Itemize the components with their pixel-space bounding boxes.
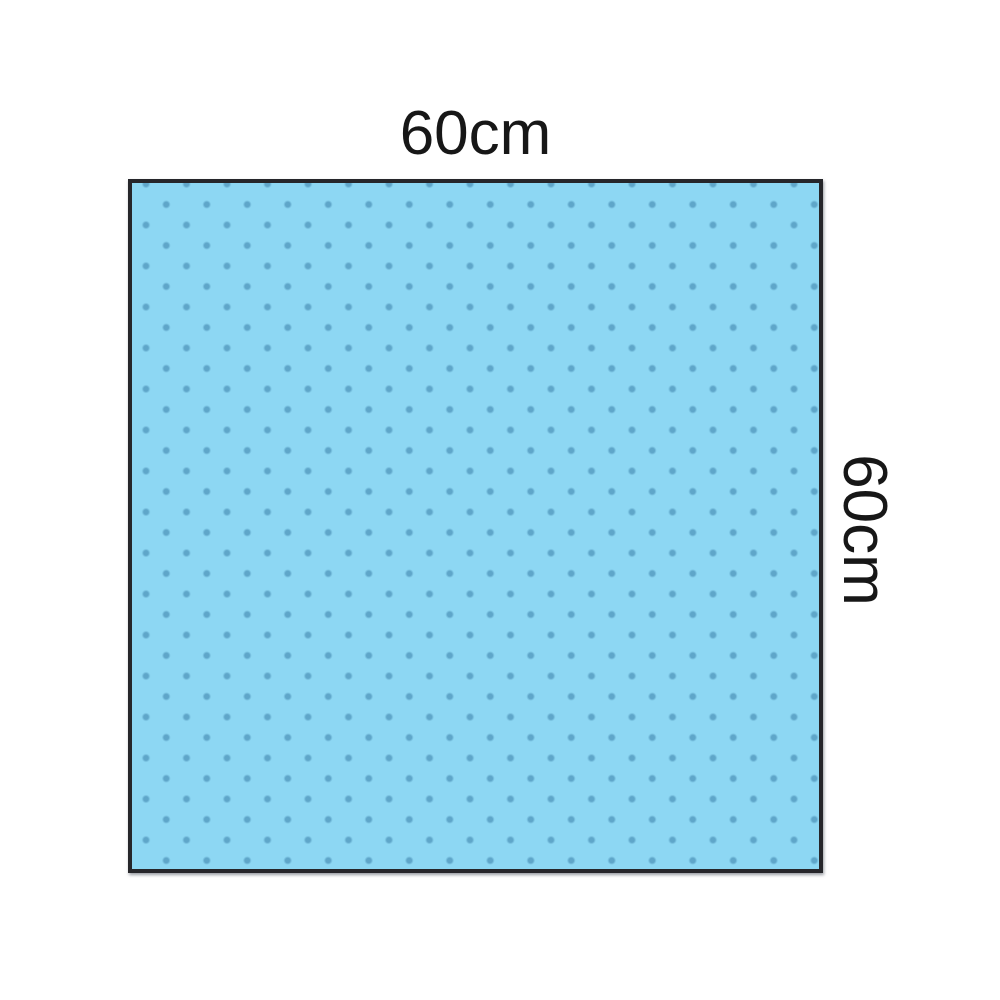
drape-diagram: 60cm 60cm bbox=[0, 0, 1000, 1000]
top-dimension-label: 60cm bbox=[128, 103, 823, 165]
drape-square bbox=[128, 179, 823, 873]
right-dimension-label: 60cm bbox=[833, 454, 895, 606]
